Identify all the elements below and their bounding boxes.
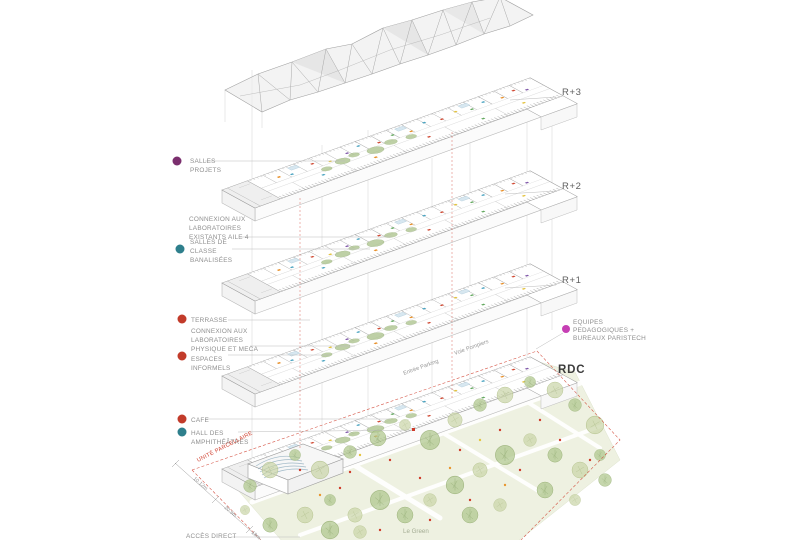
label-espaces: ESPACES (191, 356, 222, 363)
label-entree-parking: Entrée Parking (403, 359, 440, 377)
label-equipes: EQUIPES (573, 319, 603, 326)
label-level-r3: R+3 (562, 87, 582, 98)
svg-text:PEDAGOGIQUES +: PEDAGOGIQUES + (573, 327, 634, 334)
svg-text:CLASSE: CLASSE (190, 248, 217, 255)
label-level-r2: R+2 (562, 181, 582, 192)
svg-text:LABORATOIRES: LABORATOIRES (191, 337, 243, 344)
label-level-r1: R+1 (562, 275, 582, 286)
svg-text:INFORMELS: INFORMELS (191, 365, 231, 372)
svg-text:BUREAUX PARISTECH: BUREAUX PARISTECH (573, 335, 646, 342)
legend-dot-equipes (562, 325, 570, 333)
label-cafe: CAFE (191, 417, 209, 424)
label-connexion-aile4: CONNEXION AUX (189, 216, 246, 223)
leader-marker (412, 428, 415, 431)
label-hall: HALL DES (191, 430, 224, 437)
legend-dot-salles-projets (173, 157, 182, 166)
label-salles-classe: SALLES DE (190, 239, 227, 246)
level-labels: R+3 R+2 R+1 RDC EQUIPES PEDAGOGIQUES + B… (558, 87, 646, 376)
label-terrasse: TERRASSE (191, 317, 227, 324)
legend-dot-cafe (178, 415, 187, 424)
label-acces-direct: ACCÈS DIRECT (186, 531, 237, 540)
exploded-axonometric-diagram: SALLES PROJETS CONNEXION AUX LABORATOIRE… (0, 0, 800, 540)
label-dimension-3: 18m (250, 530, 262, 540)
svg-text:PROJETS: PROJETS (190, 167, 221, 174)
svg-text:PHYSIQUE ET MECA: PHYSIQUE ET MECA (191, 346, 259, 353)
diagram-canvas: SALLES PROJETS CONNEXION AUX LABORATOIRE… (0, 0, 800, 540)
label-voie-pompiers: Voie Pompiers (454, 339, 490, 357)
legend-dot-hall (178, 428, 187, 437)
label-level-rdc: RDC (558, 364, 585, 376)
svg-text:BANALISÉES: BANALISÉES (190, 255, 232, 264)
label-connexion-physique: CONNEXION AUX (191, 328, 248, 335)
label-le-green: Le Green (403, 528, 429, 535)
label-salles-projets: SALLES (190, 158, 216, 165)
legend-dot-terrasse (178, 315, 187, 324)
svg-text:LABORATOIRES: LABORATOIRES (189, 225, 241, 232)
label-dimension-2: 20.9m (223, 505, 238, 519)
legend-dot-salles-classe (176, 245, 185, 254)
legend-dot-espaces (178, 352, 187, 361)
